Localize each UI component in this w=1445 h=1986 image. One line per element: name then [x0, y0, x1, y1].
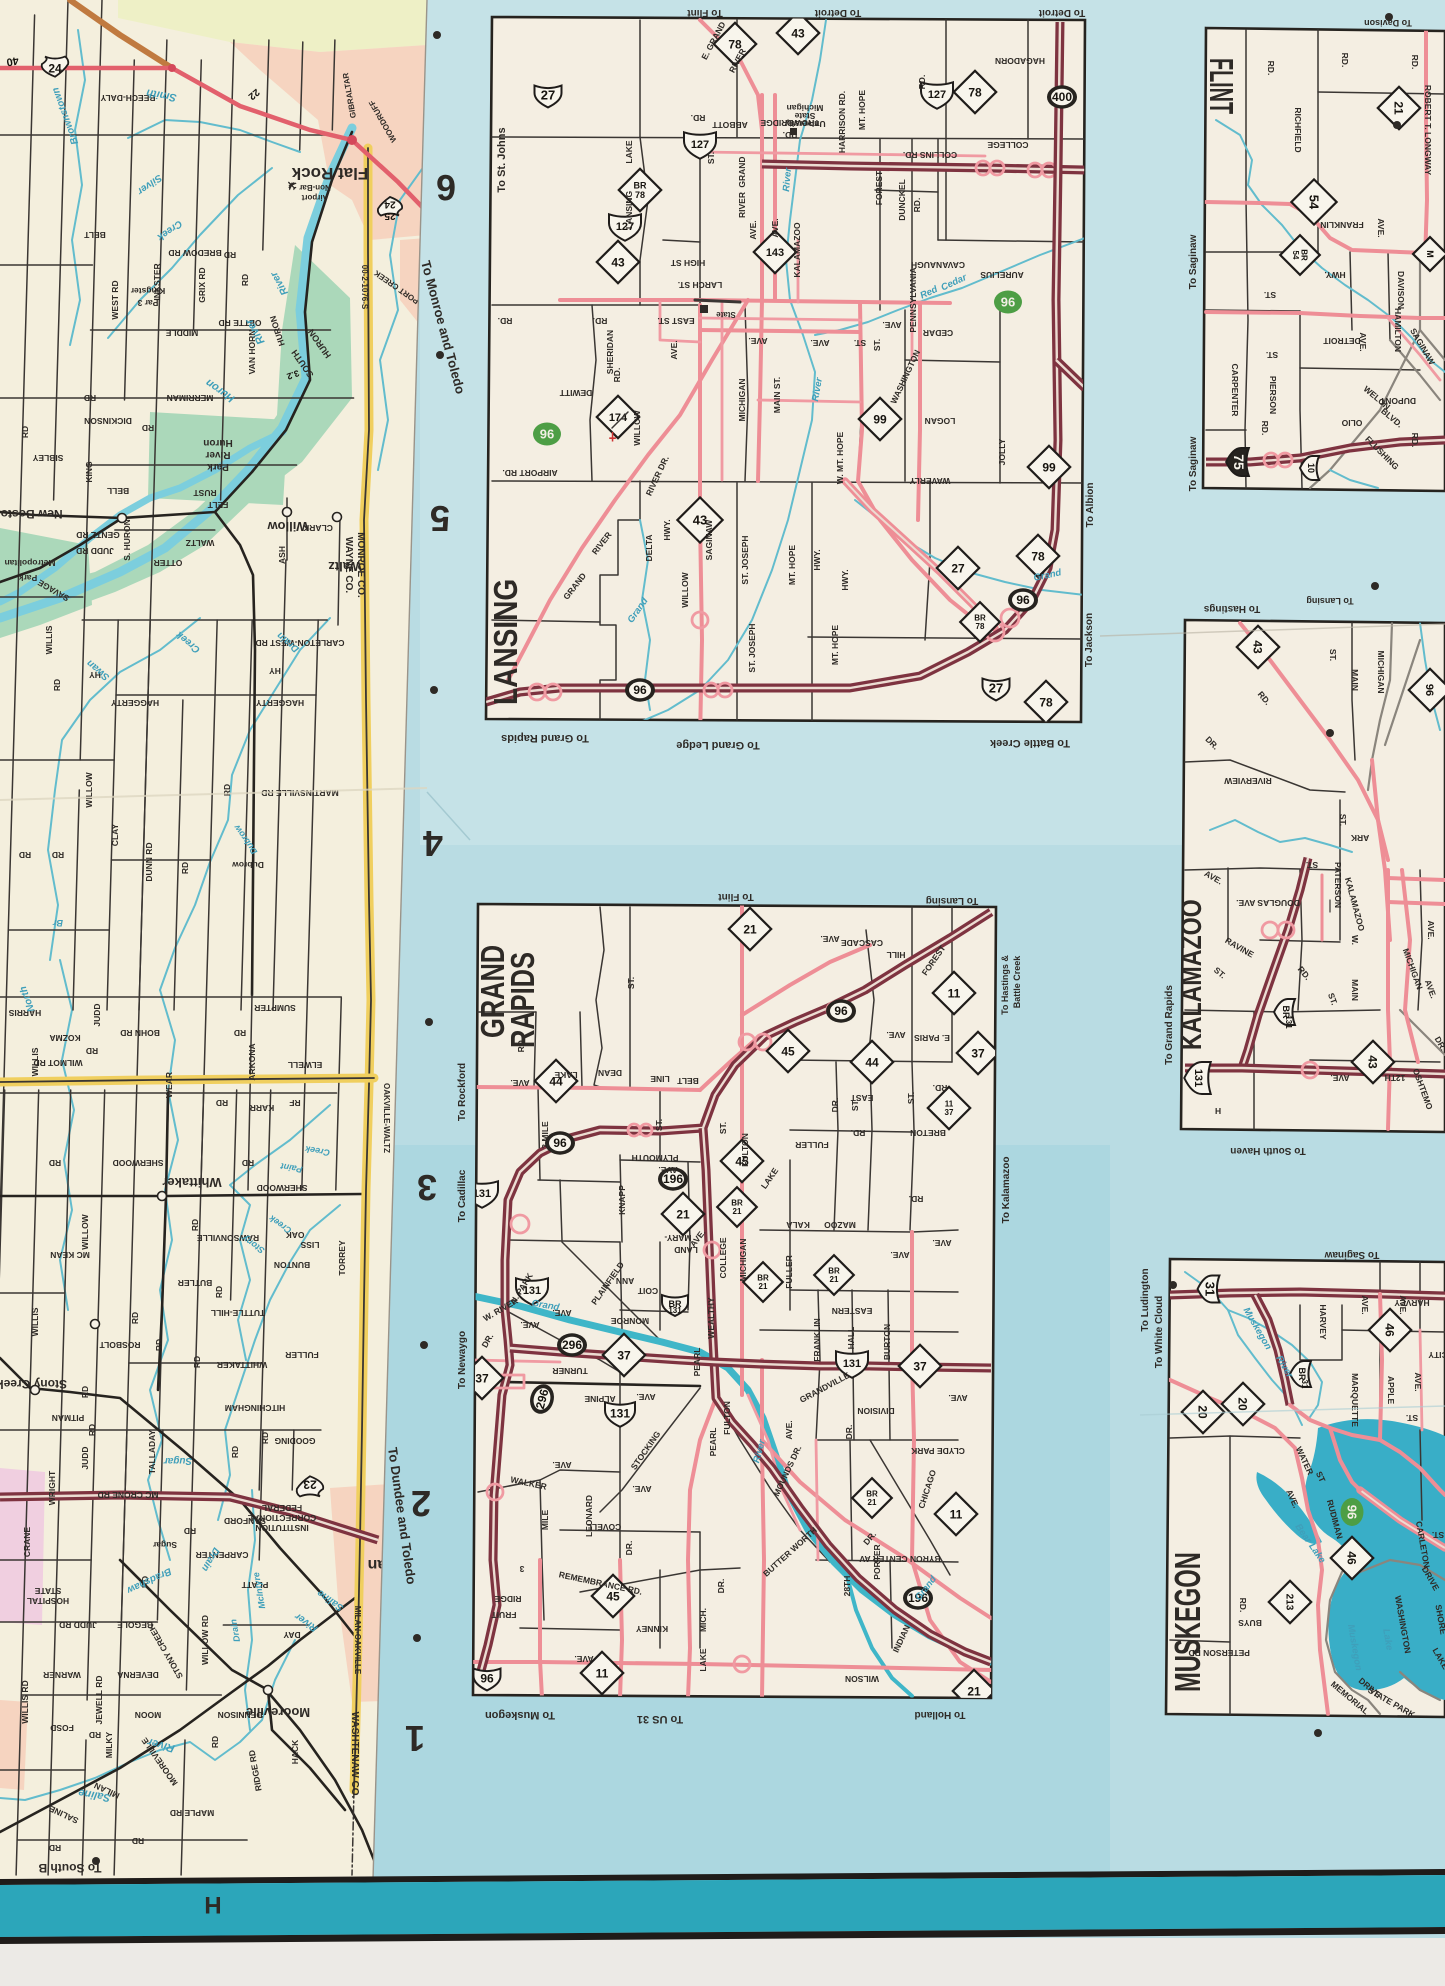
- svg-text:RD.: RD.: [933, 1083, 948, 1093]
- svg-text:MT. HOPE: MT. HOPE: [857, 90, 867, 130]
- svg-text:AVE.: AVE.: [948, 1393, 967, 1403]
- svg-text:6: 6: [436, 167, 456, 208]
- svg-text:To Detroit: To Detroit: [1038, 7, 1085, 18]
- svg-text:ST.: ST.: [1328, 649, 1338, 661]
- svg-text:PORTER: PORTER: [872, 1544, 882, 1579]
- svg-text:WAYNE CO.: WAYNE CO.: [343, 537, 354, 594]
- svg-text:SHERWOOD: SHERWOOD: [113, 1158, 164, 1168]
- svg-text:AVE.: AVE.: [748, 220, 758, 239]
- svg-text:Flat Rock: Flat Rock: [291, 164, 368, 183]
- svg-text:FULLER: FULLER: [784, 1255, 794, 1289]
- svg-text:JEWELL RD: JEWELL RD: [94, 1676, 104, 1725]
- svg-text:RD.: RD.: [1266, 61, 1276, 76]
- svg-text:HACK: HACK: [290, 1739, 300, 1764]
- svg-text:INKSTER: INKSTER: [152, 263, 162, 300]
- svg-text:RD.: RD.: [691, 113, 706, 123]
- svg-text:AVE.: AVE.: [574, 1654, 593, 1664]
- svg-text:AVE.: AVE.: [820, 934, 839, 944]
- svg-text:RD: RD: [214, 1286, 224, 1298]
- svg-text:WILLOW RD: WILLOW RD: [200, 1615, 210, 1665]
- svg-text:BUYS: BUYS: [1238, 1618, 1262, 1628]
- svg-text:AVE.: AVE.: [552, 1460, 571, 1470]
- svg-text:21: 21: [1392, 101, 1406, 115]
- svg-text:MUSKEGON: MUSKEGON: [1168, 1552, 1208, 1692]
- svg-text:MICHIGAN: MICHIGAN: [738, 1239, 748, 1282]
- svg-text:MILAN-OAKVILLE: MILAN-OAKVILLE: [353, 1606, 362, 1675]
- svg-text:Whittaker: Whittaker: [162, 1175, 221, 1190]
- svg-text:DUNCKEL: DUNCKEL: [897, 179, 907, 221]
- svg-text:ST.: ST.: [1338, 814, 1348, 826]
- svg-text:HWY.: HWY.: [812, 549, 822, 570]
- svg-text:LAKE: LAKE: [624, 140, 634, 163]
- svg-text:99: 99: [873, 412, 887, 426]
- svg-text:DEVERNA: DEVERNA: [117, 1670, 159, 1680]
- svg-text:FULTON: FULTON: [740, 1133, 750, 1167]
- svg-text:W.: W.: [1350, 935, 1360, 945]
- svg-text:RUST: RUST: [193, 488, 217, 498]
- svg-text:96: 96: [540, 427, 554, 442]
- svg-text:96: 96: [1423, 684, 1435, 696]
- svg-text:BELT: BELT: [676, 1076, 698, 1086]
- svg-text:MONROE: MONROE: [611, 1316, 650, 1326]
- svg-text:LINE: LINE: [650, 1074, 670, 1084]
- svg-text:To South B: To South B: [38, 1861, 101, 1875]
- svg-text:To Albion: To Albion: [1085, 483, 1096, 528]
- svg-text:MT. HOPE: MT. HOPE: [787, 545, 797, 585]
- svg-text:400: 400: [1052, 90, 1072, 104]
- svg-text:ROSBOLT: ROSBOLT: [99, 1340, 141, 1350]
- svg-text:RD: RD: [242, 1158, 254, 1168]
- svg-text:MC KEAN: MC KEAN: [50, 1250, 90, 1260]
- svg-text:FEDERAL: FEDERAL: [262, 1503, 302, 1513]
- svg-text:LARCH ST.: LARCH ST.: [678, 280, 722, 290]
- svg-text:MOON: MOON: [135, 1710, 161, 1720]
- svg-text:ABBOTT: ABBOTT: [711, 120, 747, 130]
- svg-text:AVE.: AVE.: [748, 336, 767, 346]
- svg-text:ST.: ST.: [654, 1119, 664, 1131]
- svg-text:43: 43: [791, 26, 805, 40]
- svg-text:HWY.: HWY.: [662, 519, 672, 540]
- svg-text:HAGGERTY: HAGGERTY: [256, 698, 305, 708]
- svg-text:AVE.: AVE.: [882, 320, 901, 330]
- svg-text:RD: RD: [240, 274, 250, 286]
- svg-text:RD: RD: [234, 1028, 246, 1038]
- svg-text:FULLER: FULLER: [285, 1350, 319, 1360]
- svg-text:COLLEGE: COLLEGE: [987, 140, 1028, 150]
- svg-text:EAST ST.: EAST ST.: [657, 316, 694, 326]
- svg-text:ROBERT T. LONGWAY: ROBERT T. LONGWAY: [1423, 85, 1433, 176]
- svg-text:EAST: EAST: [850, 1093, 873, 1103]
- svg-text:AVE.: AVE.: [784, 1420, 794, 1439]
- svg-text:RD.: RD.: [498, 316, 513, 326]
- svg-text:ST.: ST.: [1432, 1530, 1444, 1540]
- svg-text:COLLEGE: COLLEGE: [718, 1237, 728, 1278]
- svg-text:LISS: LISS: [300, 1240, 319, 1250]
- svg-text:PETERSON RD.: PETERSON RD.: [1186, 1648, 1250, 1658]
- svg-text:WEALTHY: WEALTHY: [706, 1297, 716, 1339]
- svg-text:AVE.: AVE.: [1426, 920, 1436, 939]
- svg-text:78: 78: [1039, 695, 1053, 709]
- svg-text:KING: KING: [84, 461, 94, 483]
- svg-text:CAVANAUGH: CAVANAUGH: [911, 260, 965, 270]
- svg-text:RD: RD: [260, 1432, 270, 1444]
- svg-text:COIT: COIT: [637, 1286, 658, 1296]
- svg-text:CEDAR: CEDAR: [923, 328, 953, 338]
- svg-text:WHITTAKER: WHITTAKER: [217, 1360, 267, 1370]
- svg-text:ELWELL: ELWELL: [288, 1060, 322, 1070]
- svg-text:MILE: MILE: [540, 1510, 550, 1531]
- svg-text:HWY.: HWY.: [840, 569, 850, 590]
- svg-text:43: 43: [1366, 1055, 1380, 1069]
- svg-text:BELT: BELT: [83, 230, 105, 240]
- svg-text:New Boston: New Boston: [0, 507, 63, 521]
- svg-text:To Cadillac: To Cadillac: [457, 1169, 468, 1222]
- svg-text:GENTZ RD: GENTZ RD: [76, 530, 119, 540]
- svg-text:OLIO: OLIO: [1341, 418, 1362, 428]
- svg-text:HARVEY: HARVEY: [1394, 1298, 1430, 1308]
- svg-text:Sugar: Sugar: [163, 1455, 192, 1466]
- svg-text:To White Cloud: To White Cloud: [1154, 1296, 1165, 1369]
- svg-text:131: 131: [1192, 1069, 1204, 1087]
- svg-text:To Grand Ledge: To Grand Ledge: [676, 739, 760, 751]
- svg-text:WILLOW: WILLOW: [80, 1213, 90, 1249]
- svg-text:ARK: ARK: [1350, 833, 1369, 843]
- svg-text:WASHTENAW CO.: WASHTENAW CO.: [349, 1712, 360, 1799]
- svg-text:DOUGLAS AVE.: DOUGLAS AVE.: [1236, 898, 1300, 908]
- svg-text:PEARL: PEARL: [692, 1348, 702, 1377]
- svg-text:To St. Johns: To St. Johns: [496, 127, 508, 192]
- svg-text:M: M: [1425, 250, 1435, 258]
- svg-text:WILLOW: WILLOW: [680, 571, 690, 607]
- svg-text:DR.: DR.: [716, 1579, 726, 1594]
- svg-text:11: 11: [948, 986, 961, 1000]
- svg-text:AVE.: AVE.: [1360, 1295, 1370, 1314]
- svg-text:MAIN: MAIN: [1350, 669, 1360, 691]
- svg-text:WEAR: WEAR: [164, 1072, 174, 1098]
- svg-text:RD.: RD.: [593, 316, 608, 326]
- svg-text:Battle Creek: Battle Creek: [1012, 955, 1022, 1009]
- svg-text:RD: RD: [84, 393, 96, 403]
- svg-text:OAKVILLE-WALTZ: OAKVILLE-WALTZ: [382, 1083, 391, 1153]
- svg-text:ST.: ST.: [1406, 1413, 1418, 1423]
- svg-text:To Muskegon: To Muskegon: [485, 1709, 555, 1721]
- svg-text:LANSING: LANSING: [488, 579, 525, 705]
- svg-text:ASH: ASH: [277, 546, 287, 564]
- svg-text:RD: RD: [52, 679, 62, 691]
- svg-text:RICHFIELD: RICHFIELD: [1293, 107, 1303, 152]
- svg-text:GRIX RD: GRIX RD: [197, 267, 207, 302]
- svg-text:BURTON: BURTON: [882, 1324, 892, 1360]
- svg-text:DR.: DR.: [844, 1425, 854, 1440]
- svg-text:JUDD RD: JUDD RD: [76, 546, 114, 556]
- svg-text:AVE.: AVE.: [658, 1165, 677, 1175]
- svg-text:DUNN RD: DUNN RD: [144, 842, 154, 881]
- svg-text:HAGGERTY: HAGGERTY: [111, 698, 160, 708]
- svg-text:To Ludington: To Ludington: [1140, 1268, 1151, 1331]
- svg-text:AVE.: AVE.: [636, 1392, 655, 1402]
- svg-text:CLARK: CLARK: [302, 523, 333, 533]
- svg-text:24: 24: [384, 198, 396, 209]
- svg-text:AIRPORT RD.: AIRPORT RD.: [502, 468, 557, 478]
- svg-text:To Grand Rapids: To Grand Rapids: [1164, 985, 1175, 1065]
- svg-text:54: 54: [1306, 195, 1321, 210]
- svg-text:AVE.: AVE.: [1358, 332, 1368, 351]
- svg-text:To Hastings: To Hastings: [1203, 603, 1260, 614]
- svg-text:RD: RD: [132, 1836, 144, 1846]
- svg-text:3: 3: [519, 1564, 524, 1574]
- svg-text:BUNTON: BUNTON: [274, 1260, 310, 1270]
- svg-text:54: 54: [1291, 251, 1300, 260]
- svg-text:RD.: RD.: [516, 1038, 526, 1053]
- svg-text:20: 20: [1236, 1397, 1250, 1411]
- svg-text:WILMOT RD: WILMOT RD: [33, 1058, 82, 1068]
- svg-text:ST. JOSEPH: ST. JOSEPH: [747, 623, 757, 672]
- svg-text:LAKE: LAKE: [698, 1648, 708, 1671]
- svg-text:WALTZ: WALTZ: [186, 538, 215, 548]
- svg-text:11: 11: [950, 1507, 963, 1521]
- svg-text:MICH.: MICH.: [698, 1608, 708, 1632]
- svg-text:WEST RD: WEST RD: [110, 280, 120, 319]
- svg-text:MAZOO: MAZOO: [824, 1220, 856, 1230]
- svg-text:RD.: RD.: [912, 198, 922, 213]
- svg-text:SHERWOOD: SHERWOOD: [257, 1183, 308, 1193]
- svg-text:DELTA: DELTA: [644, 534, 654, 561]
- svg-text:AVE.: AVE.: [632, 1484, 651, 1494]
- svg-text:MERRIMAN: MERRIMAN: [167, 393, 214, 403]
- svg-text:SUMPTER: SUMPTER: [254, 1003, 296, 1013]
- svg-text:TURNER: TURNER: [552, 1366, 587, 1376]
- svg-text:To Lansing: To Lansing: [1306, 596, 1353, 606]
- svg-text:PIERSON: PIERSON: [1268, 376, 1278, 414]
- svg-text:COLLINS RD.: COLLINS RD.: [903, 150, 957, 160]
- svg-text:FLINT: FLINT: [1203, 58, 1241, 114]
- svg-text:PENNSYLVANIA: PENNSYLVANIA: [908, 267, 918, 332]
- svg-text:DETROIT: DETROIT: [1323, 336, 1361, 346]
- svg-text:RD: RD: [80, 1386, 90, 1398]
- svg-text:Airport: Airport: [301, 193, 328, 202]
- svg-text:FELT: FELT: [207, 500, 228, 510]
- svg-text:37: 37: [945, 1108, 954, 1117]
- svg-text:AVE.: AVE.: [932, 1238, 951, 1248]
- svg-text:EASTERN: EASTERN: [832, 1306, 873, 1316]
- svg-text:WILLOW: WILLOW: [84, 771, 94, 807]
- svg-text:FULLER: FULLER: [795, 1140, 829, 1150]
- svg-text:RD: RD: [180, 862, 190, 874]
- svg-text:JUDD: JUDD: [80, 1446, 90, 1469]
- svg-text:12TH: 12TH: [1385, 1073, 1406, 1083]
- svg-text:27: 27: [951, 561, 965, 575]
- svg-text:1: 1: [405, 1718, 425, 1759]
- svg-text:MARY-: MARY-: [664, 1233, 691, 1243]
- svg-text:96: 96: [1345, 1505, 1360, 1519]
- svg-text:To Saginaw: To Saginaw: [1188, 234, 1199, 289]
- svg-text:5: 5: [430, 498, 450, 539]
- svg-text:HY: HY: [269, 666, 281, 676]
- svg-text:96: 96: [553, 1136, 567, 1150]
- svg-text:BELL: BELL: [107, 486, 129, 496]
- svg-text:To Saginaw: To Saginaw: [1188, 436, 1199, 491]
- svg-text:AVE.: AVE.: [510, 1078, 529, 1088]
- svg-text:21: 21: [830, 1275, 839, 1284]
- svg-text:WRIGHT: WRIGHT: [47, 1470, 57, 1505]
- svg-text:✝: ✝: [607, 429, 618, 444]
- svg-text:River: River: [781, 166, 794, 192]
- svg-text:MIDDLE: MIDDLE: [165, 328, 198, 338]
- svg-text:HARRISON RD.: HARRISON RD.: [837, 91, 847, 153]
- svg-text:AVE.: AVE.: [890, 1250, 909, 1260]
- svg-text:RD: RD: [216, 1098, 228, 1108]
- svg-text:RD: RD: [210, 1736, 220, 1748]
- svg-text:To Holland: To Holland: [915, 1709, 966, 1720]
- svg-text:Park: Park: [207, 461, 229, 472]
- svg-text:20: 20: [1196, 1405, 1210, 1419]
- svg-text:RD.: RD.: [909, 1194, 924, 1204]
- svg-text:RD: RD: [192, 1356, 202, 1368]
- svg-text:ST. JOSEPH: ST. JOSEPH: [740, 535, 750, 584]
- svg-text:University: University: [784, 119, 825, 129]
- svg-text:46: 46: [1383, 1323, 1397, 1337]
- svg-text:TUTTLE-HILL: TUTTLE-HILL: [211, 1308, 265, 1318]
- svg-text:296: 296: [562, 1338, 582, 1352]
- svg-text:21: 21: [676, 1207, 690, 1221]
- svg-text:Willow: Willow: [267, 519, 309, 534]
- svg-text:78: 78: [968, 85, 982, 99]
- svg-text:ST.: ST.: [1306, 860, 1318, 870]
- svg-text:TALLADAY: TALLADAY: [147, 1429, 157, 1474]
- svg-text:APPLE: APPLE: [1386, 1376, 1396, 1405]
- svg-text:RD.: RD.: [1340, 53, 1350, 68]
- svg-text:127: 127: [928, 89, 946, 101]
- svg-text:21: 21: [743, 922, 757, 936]
- svg-text:KNAPP: KNAPP: [617, 1185, 627, 1215]
- svg-text:21: 21: [759, 1282, 768, 1291]
- svg-text:ST.: ST.: [906, 1092, 916, 1104]
- svg-text:25: 25: [384, 210, 396, 221]
- svg-text:KALAMAZOO: KALAMAZOO: [792, 222, 802, 278]
- svg-text:21: 21: [733, 1207, 742, 1216]
- svg-text:To Hastings &: To Hastings &: [1000, 955, 1010, 1015]
- svg-text:AVE.: AVE.: [520, 1320, 539, 1330]
- svg-text:MAPLE RD: MAPLE RD: [170, 1808, 214, 1818]
- svg-text:10: 10: [1306, 463, 1316, 473]
- svg-text:S. HURON: S. HURON: [122, 519, 132, 561]
- svg-text:CLAY: CLAY: [110, 823, 120, 846]
- svg-text:To Newaygo: To Newaygo: [457, 1331, 468, 1389]
- svg-text:AVE.: AVE.: [669, 340, 679, 359]
- svg-text:RF: RF: [289, 1098, 300, 1108]
- svg-text:GOODING: GOODING: [274, 1436, 315, 1446]
- svg-text:TORREY: TORREY: [337, 1240, 347, 1276]
- svg-text:DIVISION: DIVISION: [857, 1406, 894, 1416]
- svg-text:JUDD: JUDD: [92, 1003, 102, 1026]
- svg-text:131: 131: [843, 1358, 861, 1370]
- svg-text:CASCADE: CASCADE: [841, 938, 883, 948]
- svg-text:AVE.: AVE.: [886, 1030, 905, 1040]
- svg-text:ST.: ST.: [626, 977, 636, 989]
- svg-text:40: 40: [5, 54, 19, 68]
- svg-text:WILLIS: WILLIS: [44, 625, 54, 654]
- svg-text:GRAND: GRAND: [737, 156, 747, 187]
- svg-text:RD: RD: [154, 1339, 164, 1351]
- svg-text:FRUIT: FRUIT: [491, 1610, 517, 1620]
- svg-text:Sugar: Sugar: [152, 1540, 177, 1550]
- svg-text:37: 37: [913, 1359, 927, 1373]
- svg-text:78: 78: [635, 190, 645, 200]
- svg-text:COVELL: COVELL: [587, 1522, 621, 1532]
- svg-text:MILKY: MILKY: [104, 1731, 114, 1758]
- svg-text:HWY.: HWY.: [1324, 270, 1345, 280]
- svg-text:CRANE: CRANE: [22, 1527, 32, 1558]
- svg-text:ANN: ANN: [616, 1276, 634, 1286]
- svg-text:RD: RD: [49, 1158, 61, 1168]
- svg-text:WAVERLY: WAVERLY: [909, 476, 950, 486]
- svg-text:Huron: Huron: [203, 437, 232, 448]
- svg-text:H: H: [204, 1891, 221, 1918]
- svg-text:31: 31: [1202, 1282, 1217, 1296]
- svg-text:DAVISON: DAVISON: [1396, 271, 1406, 309]
- svg-text:WILLIS: WILLIS: [30, 1047, 40, 1076]
- svg-text:ST.: ST.: [718, 1122, 728, 1134]
- svg-text:KINNEY: KINNEY: [636, 1624, 668, 1634]
- svg-text:DR.: DR.: [624, 1541, 634, 1556]
- svg-text:WILLOW: WILLOW: [632, 409, 642, 445]
- svg-text:PITMAN: PITMAN: [52, 1413, 85, 1423]
- svg-text:RD: RD: [20, 426, 30, 438]
- svg-text:To South Haven: To South Haven: [1230, 1145, 1305, 1156]
- svg-text:Park: Park: [19, 573, 38, 583]
- svg-text:4: 4: [423, 823, 443, 864]
- svg-text:AVE.: AVE.: [810, 338, 829, 348]
- svg-text:3: 3: [417, 1167, 437, 1208]
- svg-text:HAGADORN: HAGADORN: [995, 56, 1045, 66]
- svg-text:SHERIDAN: SHERIDAN: [605, 330, 615, 374]
- svg-text:BREDOW RD: BREDOW RD: [168, 248, 221, 258]
- svg-text:3 MILE: 3 MILE: [540, 1121, 550, 1149]
- svg-text:DEWITT: DEWITT: [559, 388, 592, 398]
- svg-text:PEARL: PEARL: [708, 1428, 718, 1457]
- svg-text:21: 21: [868, 1498, 877, 1507]
- svg-text:131: 131: [1284, 1015, 1293, 1029]
- svg-text:KOZMA: KOZMA: [49, 1033, 80, 1043]
- svg-text:44: 44: [865, 1055, 879, 1069]
- svg-text:MONROE CO.: MONROE CO.: [355, 532, 366, 598]
- svg-text:43: 43: [611, 255, 625, 269]
- svg-text:W. MT. HOPE: W. MT. HOPE: [835, 431, 845, 484]
- svg-text:RD: RD: [87, 1424, 97, 1436]
- svg-text:To Flint: To Flint: [718, 891, 754, 902]
- svg-text:78: 78: [976, 622, 985, 631]
- svg-text:37: 37: [971, 1046, 985, 1060]
- svg-text:BOHN RD: BOHN RD: [120, 1028, 160, 1038]
- svg-text:River: River: [205, 449, 230, 460]
- svg-text:FRANKLIN: FRANKLIN: [812, 1318, 822, 1361]
- svg-text:31: 31: [1300, 1380, 1309, 1389]
- svg-text:H: H: [1215, 1106, 1221, 1116]
- svg-text:LOGAN: LOGAN: [925, 416, 956, 426]
- svg-text:RD: RD: [19, 850, 31, 860]
- svg-text:RD: RD: [52, 850, 64, 860]
- svg-text:DICKINSON: DICKINSON: [84, 416, 132, 426]
- svg-text:To Jackson: To Jackson: [1084, 613, 1095, 667]
- svg-text:131: 131: [668, 1306, 682, 1315]
- svg-text:27: 27: [989, 681, 1003, 696]
- svg-text:RD: RD: [190, 1219, 200, 1231]
- svg-text:To Flint: To Flint: [687, 7, 723, 18]
- svg-text:WARNER: WARNER: [43, 1670, 81, 1680]
- svg-text:11: 11: [596, 1666, 609, 1680]
- svg-text:HITCHINGHAM: HITCHINGHAM: [225, 1403, 285, 1413]
- svg-text:37: 37: [617, 1348, 631, 1362]
